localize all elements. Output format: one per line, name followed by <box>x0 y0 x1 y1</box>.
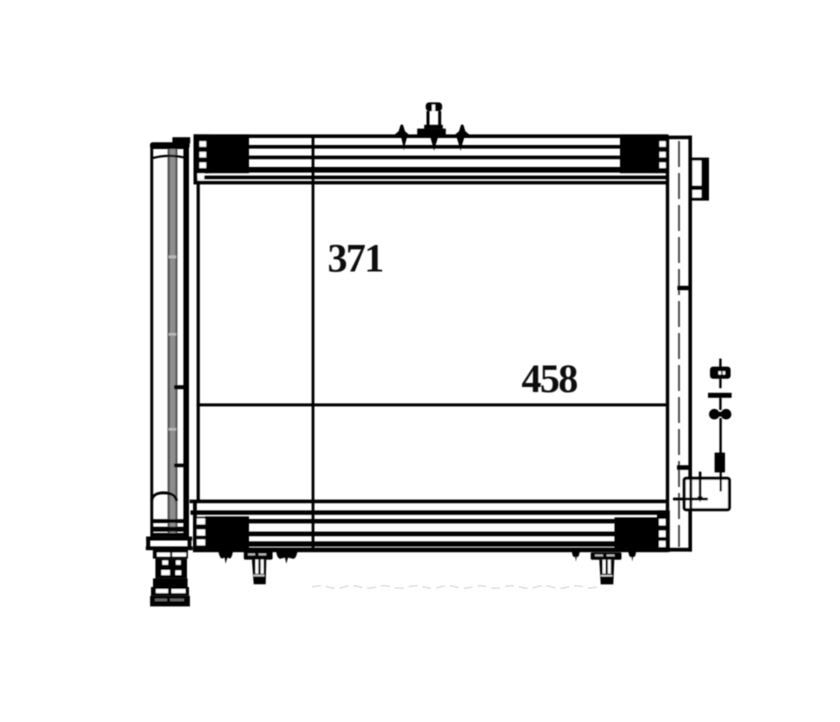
svg-text:458: 458 <box>522 356 578 401</box>
svg-text:371: 371 <box>328 236 383 281</box>
